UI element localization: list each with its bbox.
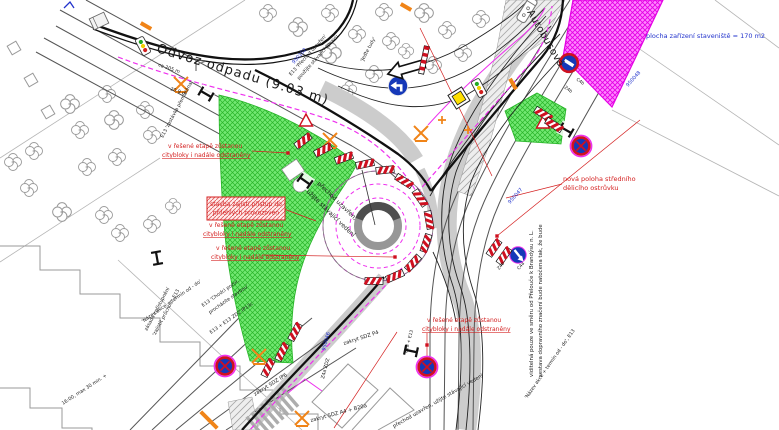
tree-icon [109, 149, 126, 166]
z4-board-icon [395, 173, 414, 188]
tree-icon [79, 159, 96, 176]
label-zakryt-p4: zakryt SDZ P4 [343, 330, 380, 347]
tree-icon [473, 11, 490, 28]
label-stage-a-2: citybloky i nadále odstraněny [162, 152, 251, 159]
closed-area-island [505, 93, 566, 144]
tree-icon [137, 102, 154, 119]
red-dot-icon [425, 343, 428, 346]
label-dim-205: ca 205 m [157, 62, 180, 75]
label-stage-d-2: citybloky i nadále odstraněny [422, 326, 511, 333]
red-dot-icon [393, 255, 396, 258]
tree-icon [415, 4, 434, 23]
label-z4a-zdz: Z4a ZDZ [320, 357, 331, 380]
blue-mark-icon [64, 2, 74, 8]
label-access-box-2: přilehlých provozoven [213, 210, 279, 217]
label-stage-d-1: v řešené etapě zůstanou [427, 317, 501, 324]
label-stage-c-2: citybloky i nadále odstraněny [211, 254, 300, 261]
parcel-lines [0, 0, 779, 430]
label-code-z4b-top: Z4b [563, 85, 574, 95]
no-stopping-icon [416, 356, 437, 377]
label-nazev-akce-1: 'Název akce + termín od - do' [140, 278, 203, 325]
z4-board-icon [365, 278, 383, 285]
tree-icon [260, 5, 277, 22]
label-jedte-tudy: 'Jeďte tudy' [359, 36, 377, 63]
red-triangle-icon [300, 114, 313, 126]
tree-icon [72, 122, 89, 139]
label-island-note-1: nová poloha středního [563, 175, 636, 183]
yellow-panel-icon [448, 87, 470, 109]
z4-board-icon [486, 239, 502, 258]
orange-x-icon [414, 126, 428, 141]
tree-icon [439, 22, 456, 39]
turn-arrow-icon [388, 76, 407, 95]
bypass-arrow-icon [510, 247, 526, 263]
traffic-light-icon [135, 36, 151, 56]
tree-icon [112, 225, 129, 242]
label-time-note: 16:00, max 30 min. + [61, 373, 108, 407]
label-staging-area-note: plocha zařízení staveniště = 170 m2 [646, 32, 765, 40]
z4-board-icon [355, 159, 374, 169]
label-island-note-2: dělicího ostrůvku [563, 184, 619, 192]
tree-icon [289, 18, 308, 37]
orange-bar-icon [400, 2, 412, 11]
tree-icon [376, 4, 393, 21]
label-stage-c-1: v řešené etapě zůstanou [216, 245, 290, 252]
label-id-950047: 950047 [507, 187, 524, 205]
no-stopping-icon [570, 135, 591, 156]
tree-icon [349, 26, 366, 43]
tree-icon [105, 111, 124, 130]
orange-x-icon [295, 411, 309, 426]
orange-bar-icon [140, 21, 152, 30]
red-dot-icon [495, 234, 498, 237]
tree-icon [366, 66, 383, 83]
label-rotate-note-1: sestava dopravního značení bude natočena… [537, 224, 544, 377]
tree-icon [61, 95, 80, 114]
z4-board-icon [376, 166, 395, 175]
ibeam-icon [149, 249, 165, 266]
staging-area [563, 0, 663, 107]
traffic-plan-canvas: Odvoz odpadu (9.03 m)Autobusováplocha za… [0, 0, 779, 430]
label-stage-b-2: citybloky i nadále odstraněny [203, 231, 292, 238]
tree-icon [398, 43, 413, 58]
tree-icon [96, 207, 113, 224]
tree-icon [26, 143, 43, 160]
tree-icon [53, 203, 72, 222]
tree-icon [144, 216, 161, 233]
orange-plus-icon [438, 116, 446, 124]
label-stage-b-1: v řešené etapě zůstanou [209, 222, 283, 229]
no-stopping-icon [214, 355, 235, 376]
red-dot-icon [286, 151, 289, 154]
tree-icon [383, 33, 400, 50]
label-access-box-1: stavba zajistí přístup do [210, 201, 282, 208]
tree-icon [322, 5, 339, 22]
tree-icon [21, 180, 38, 197]
label-rotate-note-2: viditelná pouze ve směru od Přelouče k B… [528, 230, 535, 377]
tree-icon [144, 127, 161, 144]
label-stage-a-1: v řešené etapě zůstanou [168, 143, 242, 150]
z4-board-icon [385, 269, 404, 283]
tree-icon [165, 198, 180, 213]
tree-icon [5, 154, 22, 171]
